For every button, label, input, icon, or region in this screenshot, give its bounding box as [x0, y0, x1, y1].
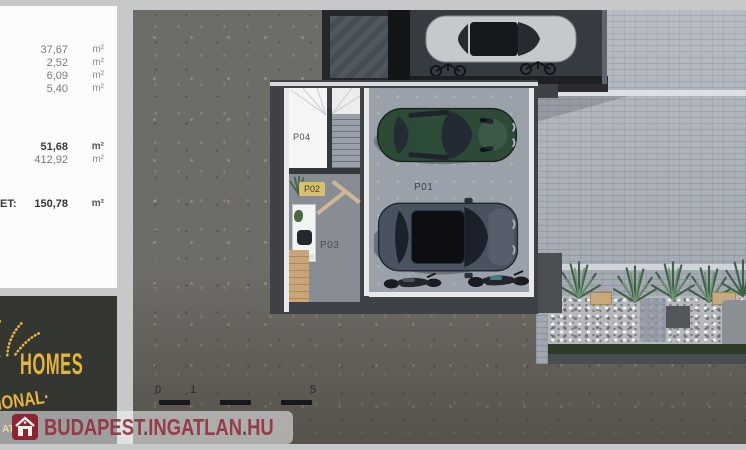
area-unit: m²	[80, 70, 104, 81]
garage-wall-right	[529, 88, 534, 296]
room-label-p02: P02	[299, 182, 325, 196]
subtotal-row: 51,68m²	[0, 141, 117, 154]
garage-wall-bottom	[369, 292, 534, 297]
total-unit: m²	[80, 198, 104, 209]
area-value: 5,40	[8, 83, 68, 95]
room-p04: P04	[289, 88, 327, 168]
area-row: 37,67m²	[0, 44, 117, 57]
subtotal-value: 51,68	[8, 141, 68, 153]
sink	[297, 230, 312, 245]
rooms-p02-p03: P02 P03	[289, 174, 360, 302]
dimmed-upper-plan	[322, 10, 607, 84]
dimmed-wall-edge	[602, 10, 607, 84]
motorcycle-icon	[466, 268, 532, 290]
stair-fan-lines	[332, 88, 360, 114]
scale-bar-segment	[281, 400, 312, 405]
subtotal-row: 412,92m²	[0, 154, 117, 167]
room-label-p01: P01	[414, 182, 433, 193]
garden-wall-right	[722, 300, 746, 344]
total-value: 150,78	[8, 198, 68, 210]
stair-fan-lines	[289, 88, 327, 116]
scale-tick-1: 1	[187, 384, 199, 396]
motorcycle-icon	[382, 270, 444, 292]
area-unit: m²	[80, 57, 104, 68]
scale-tick-5: 5	[307, 384, 319, 396]
retaining-wall	[538, 253, 562, 313]
bicycle-icon	[517, 58, 575, 76]
scale-tick-0: 0	[152, 384, 164, 396]
dimmed-wall	[388, 10, 410, 84]
area-row: 5,40m²	[0, 83, 117, 96]
building-floorplan: P04 P02 P03	[270, 80, 538, 314]
area-table-panel: 37,67m² 2,52m² 6,09m² 5,40m² 51,68m² 412…	[0, 6, 117, 288]
wood-edging	[590, 292, 612, 305]
wall-line-top	[270, 82, 538, 86]
stair-treads	[332, 114, 360, 168]
watermark-part: BUDAPEST	[44, 414, 143, 440]
watermark-part: INGATLAN	[148, 414, 242, 440]
room-p02-mat: P02	[299, 182, 325, 196]
room-label-p04: P04	[293, 132, 311, 142]
hedge-strip	[548, 344, 746, 354]
area-unit: m²	[80, 44, 104, 55]
logo-wordmark: HOMES	[20, 348, 83, 382]
total-row: ET:150,78m²	[0, 198, 117, 211]
wood-floor	[289, 250, 309, 302]
garage-p01-floor	[369, 88, 529, 296]
scale-bar-segment	[220, 400, 251, 405]
subtotal-unit: m²	[80, 154, 104, 165]
area-row: 6,09m²	[0, 70, 117, 83]
room-label-p03: P03	[320, 240, 339, 251]
watermark-text: BUDAPEST.INGATLAN.HU	[44, 414, 274, 441]
area-unit: m²	[80, 83, 104, 94]
garden-wall-block	[666, 306, 690, 328]
listing-floorplan-image: P04 P02 P03	[0, 0, 746, 450]
subtotal-value: 412,92	[8, 154, 68, 166]
area-value: 37,67	[8, 44, 68, 56]
subtotal-unit: m²	[80, 141, 104, 152]
dimmed-staircase	[330, 16, 388, 78]
garden-wall-bottom	[548, 354, 746, 364]
watermark-part: HU	[247, 414, 274, 440]
scale-bar-segment	[159, 400, 190, 405]
stone-patch	[640, 298, 666, 342]
floor-drain-dot	[440, 185, 443, 188]
area-value: 6,09	[8, 70, 68, 82]
area-value: 2,52	[8, 57, 68, 69]
plant-pot	[294, 210, 303, 222]
area-row: 2,52m²	[0, 57, 117, 70]
watermark-bar: BUDAPEST.INGATLAN.HU	[0, 411, 293, 444]
house-icon	[12, 414, 38, 440]
staircase	[332, 88, 360, 168]
